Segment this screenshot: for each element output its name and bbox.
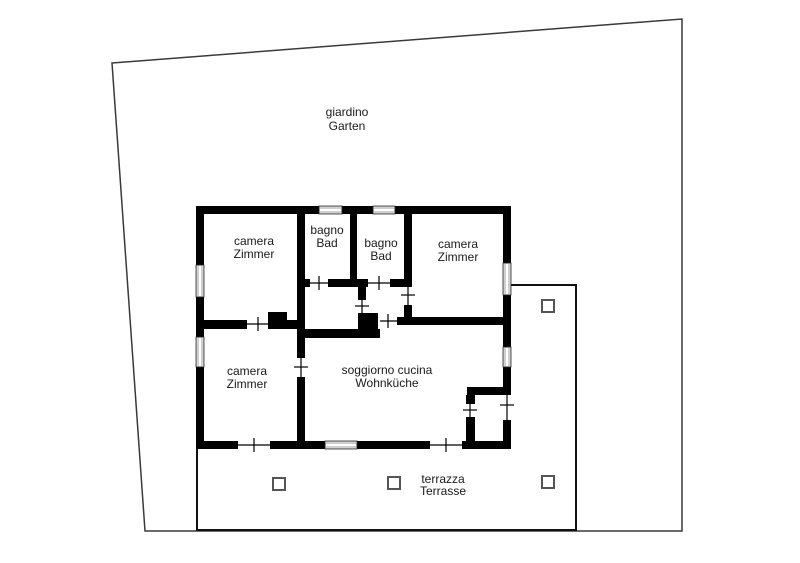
wall-segment	[270, 441, 325, 449]
wall-segment	[196, 206, 204, 265]
wall-segment	[503, 295, 511, 347]
room-label-bedroom-top-right-de: Zimmer	[438, 250, 479, 264]
wall-segment	[287, 320, 297, 329]
terrace-pillar	[273, 478, 285, 490]
window	[196, 337, 204, 367]
wall-segment	[196, 320, 247, 329]
room-label-bathroom-right-it: bagno	[364, 236, 398, 250]
wall-segment	[342, 206, 373, 214]
room-label-living-kitchen-it: soggiorno cucina	[342, 363, 433, 377]
wall-segment	[196, 441, 238, 449]
room-label-living-kitchen-de: Wohnküche	[355, 376, 418, 390]
wall-segment	[196, 367, 204, 441]
window	[503, 263, 511, 295]
room-label-bedroom-bottom-left-it: camera	[227, 364, 267, 378]
wall-segment	[358, 313, 378, 338]
wall-segment	[503, 206, 511, 263]
wall-segment	[390, 279, 412, 287]
room-label-bathroom-right-de: Bad	[370, 249, 391, 263]
wall-segment	[357, 441, 430, 449]
wall-segment	[462, 441, 511, 449]
wall-segment	[297, 377, 305, 441]
wall-segment	[404, 214, 412, 285]
floor-plan-page: giardino Garten camera Zimmer bagno Bad …	[0, 0, 800, 563]
garden-label-de: Garten	[329, 119, 366, 133]
room-label-bedroom-top-left-de: Zimmer	[234, 247, 275, 261]
terrace-pillar	[542, 476, 554, 488]
room-label-bedroom-bottom-left-de: Zimmer	[227, 377, 268, 391]
wall-segment	[503, 420, 511, 441]
wall-segment	[466, 395, 475, 404]
wall-segment	[350, 214, 357, 286]
wall-segment	[297, 279, 310, 287]
wall-segment	[358, 286, 366, 300]
wall-segment	[357, 279, 368, 287]
floor-plan-drawing: giardino Garten camera Zimmer bagno Bad …	[0, 0, 800, 563]
terrace-label-de: Terrasse	[420, 484, 466, 498]
window	[325, 441, 357, 449]
garden-label-it: giardino	[326, 105, 369, 119]
wall-segment	[503, 367, 511, 390]
wall-segment	[397, 317, 503, 325]
wall-segment	[196, 297, 204, 337]
window	[196, 265, 204, 297]
wall-segment	[268, 312, 287, 329]
wall-segment	[466, 417, 475, 441]
room-label-bathroom-left-de: Bad	[316, 236, 337, 250]
window	[373, 206, 395, 214]
wall-segment	[196, 206, 319, 214]
wall-segment	[395, 206, 511, 214]
wall-segment	[328, 279, 357, 287]
room-label-bathroom-left-it: bagno	[310, 223, 344, 237]
room-label-bedroom-top-left-it: camera	[234, 234, 274, 248]
terrace-pillar	[542, 300, 554, 312]
wall-segment	[404, 305, 412, 319]
room-label-bedroom-top-right-it: camera	[438, 237, 478, 251]
window	[319, 206, 342, 214]
window	[503, 347, 511, 367]
terrace-pillar	[388, 477, 400, 489]
wall-segment	[467, 387, 511, 395]
